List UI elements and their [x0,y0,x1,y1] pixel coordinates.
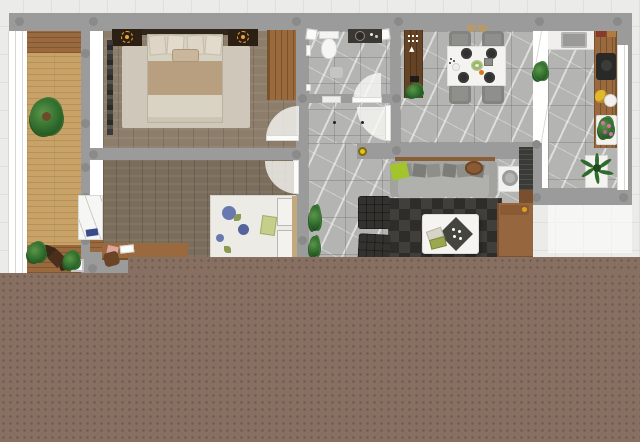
column [392,146,401,155]
tray-cups [452,228,455,231]
hall-spotlight [361,121,364,124]
wall-east-outer-edge [628,45,632,190]
column [613,17,622,26]
white-tray-plant [75,263,80,268]
column [532,193,541,202]
vanity-counter [348,29,382,43]
bedroom1-wardrobe [267,30,296,100]
column [619,193,628,202]
column [81,163,90,172]
partition-plant [533,62,548,81]
palm-plant [583,152,611,186]
daybed-orange-item [522,207,527,212]
column [292,150,301,159]
cutoff-band-left [0,273,640,442]
pendant-lamp [467,25,476,32]
column [298,94,307,103]
column [81,119,90,128]
balcony-top-wood-strip [27,31,81,53]
desk-papers [120,244,135,253]
armchair [358,196,390,229]
hall-door-leaf [385,105,391,141]
pink-flower-plant [598,117,614,139]
bathroom-door-leaf [352,97,382,103]
dining-kitchen-glass-partition [533,31,548,143]
sofa-pillow [426,163,440,177]
media-shelf [519,147,533,190]
column [298,236,307,245]
balcony-deck-floor [27,31,81,273]
east-facade-window-band [617,45,628,190]
dinner-plate [461,48,472,59]
cooktop-burner [601,60,612,71]
living-wall-plant [309,205,321,231]
vanity-faucet [370,33,373,36]
coat-rack [107,40,113,135]
gray-serving-box [484,58,493,66]
bed1-pillow [204,34,223,55]
small-dish [452,63,460,71]
sofa-pillow [442,163,456,177]
bed2-floral-leaf [224,246,231,253]
column [392,94,401,103]
table-lamp-left [121,31,133,43]
column [89,17,98,26]
balcony-planter [27,242,46,263]
kitchen-sink [561,32,587,48]
column [394,17,403,26]
floor-plan-canvas: ▲ [0,0,640,442]
corner-shelf [305,28,317,40]
hall-spotlight [333,121,336,124]
balcony-french-window-bed2 [90,160,103,195]
bath-mat [330,67,343,78]
dining-chair [482,84,504,104]
pink-flowers [601,121,605,125]
vanity-round-sink [355,31,365,41]
bedroom2-door-leaf [293,160,299,194]
bed2-floral-leaf [234,214,241,221]
column [88,264,97,273]
pepper-shakers [450,58,452,60]
bed2-floral-blue [238,224,249,235]
ceiling-light-yellow [358,147,367,156]
balcony-french-window-bed1 [90,31,103,148]
kitchen-partition-lower [542,143,548,188]
toilet-bowl [321,38,337,59]
dinner-plate [484,72,495,83]
closet-potted-plant [406,84,423,98]
balcony-plant-pot [42,112,51,121]
pendant-lamp [478,25,487,32]
fruit-bowl [604,94,617,107]
red-tray [596,31,606,37]
column [89,150,98,159]
wall-between-bedrooms [81,148,300,160]
bed1-accent-pillow [172,49,199,62]
column [15,17,24,26]
bedroom1-door-leaf [266,135,299,141]
table-lamp-right [237,31,249,43]
dinner-plate [458,72,469,83]
sofa-pillow [412,163,426,177]
towel-rail [306,45,311,56]
orange-fruit [479,70,484,75]
hall-doormat [322,96,341,103]
media-shelf-wood [519,190,533,203]
column [81,49,90,58]
bed2-green-cushion [260,215,277,236]
column [292,17,301,26]
dining-chair [449,84,471,104]
wall-kitchen-south [530,188,632,205]
west-facade-window-band [8,31,27,273]
bed1-pillow [148,34,167,55]
hanger-icon: ▲ [409,46,414,53]
light-patch-outside-kitchen [548,205,632,253]
closet-shoes [410,76,419,82]
sofa-serving-tray [465,161,483,175]
column [535,17,544,26]
cutting-board [607,31,616,37]
towel-rail [306,84,311,91]
closet-shelf-dots-icon [408,35,410,37]
bed2-floral-blue [216,234,224,242]
living-wall-plant [309,236,320,257]
column [532,140,541,149]
side-table-lamp-ring [502,170,518,186]
